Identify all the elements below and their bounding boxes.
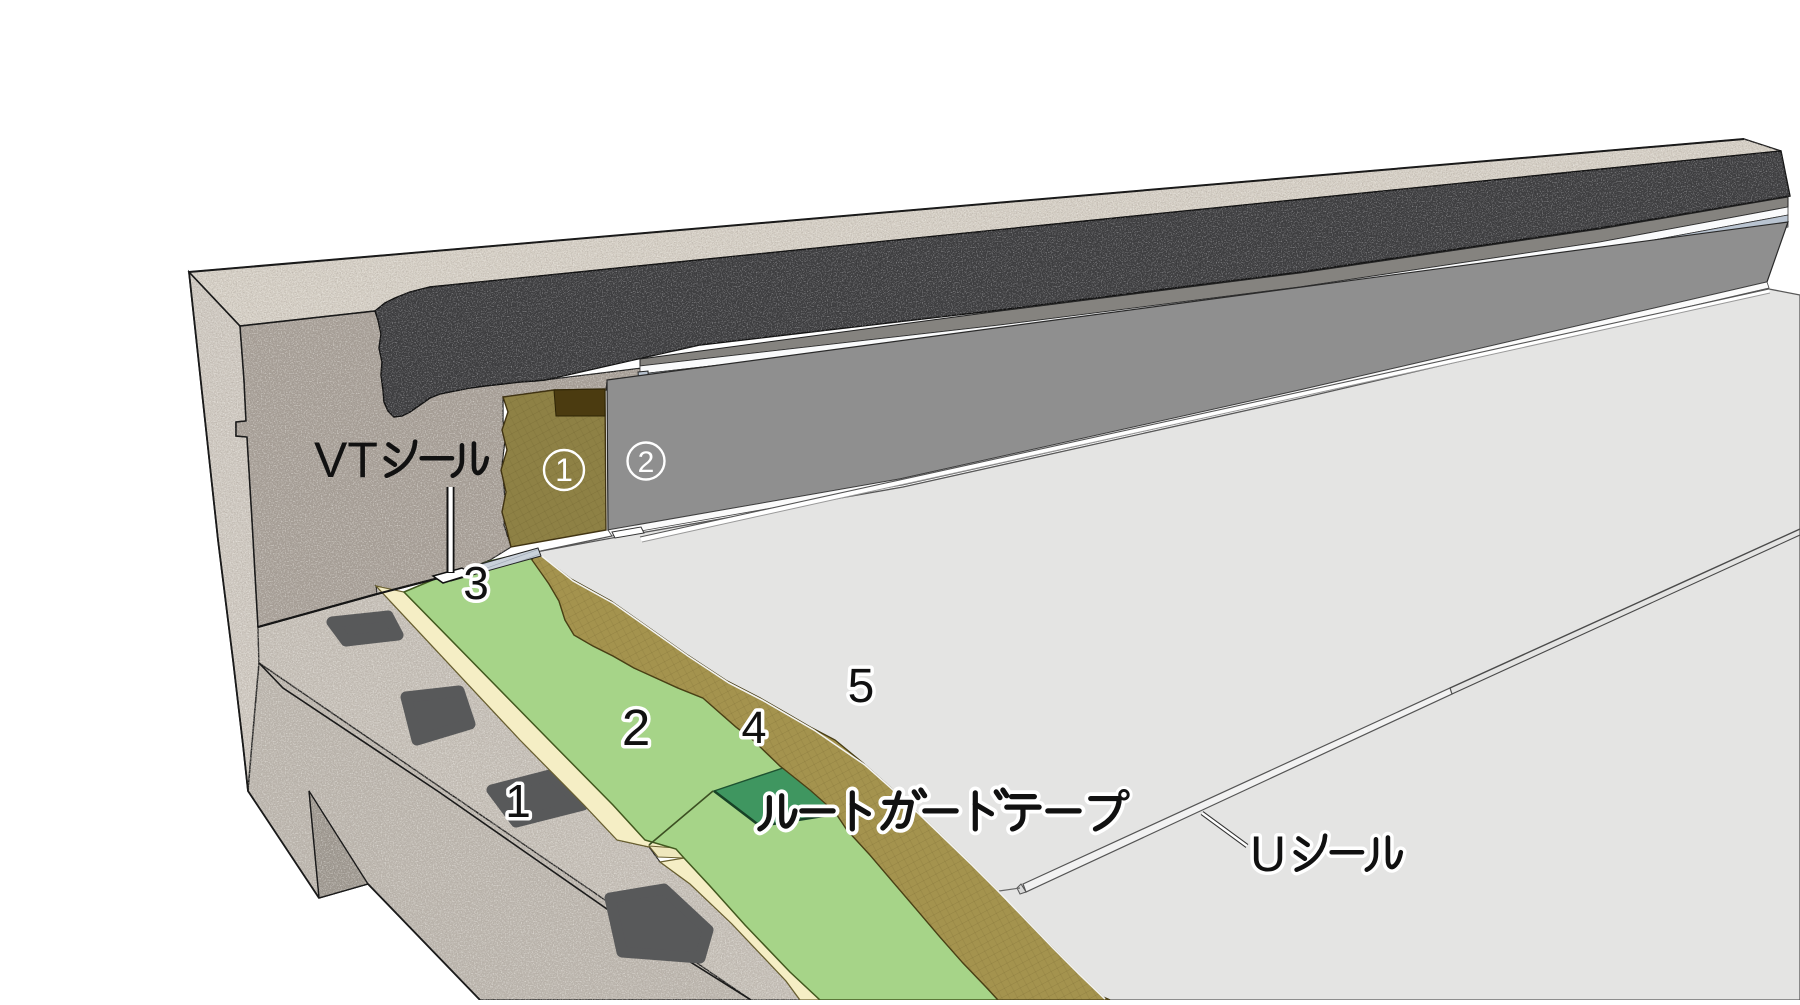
svg-text:4: 4 [741,702,766,753]
svg-text:5: 5 [848,660,875,713]
svg-text:1: 1 [555,452,573,488]
svg-text:VT: VT [314,432,378,488]
svg-text:2: 2 [638,446,655,479]
svg-text:1: 1 [505,775,531,827]
svg-text:2: 2 [622,699,650,756]
svg-text:U: U [1250,826,1286,882]
svg-text:3: 3 [463,557,489,609]
